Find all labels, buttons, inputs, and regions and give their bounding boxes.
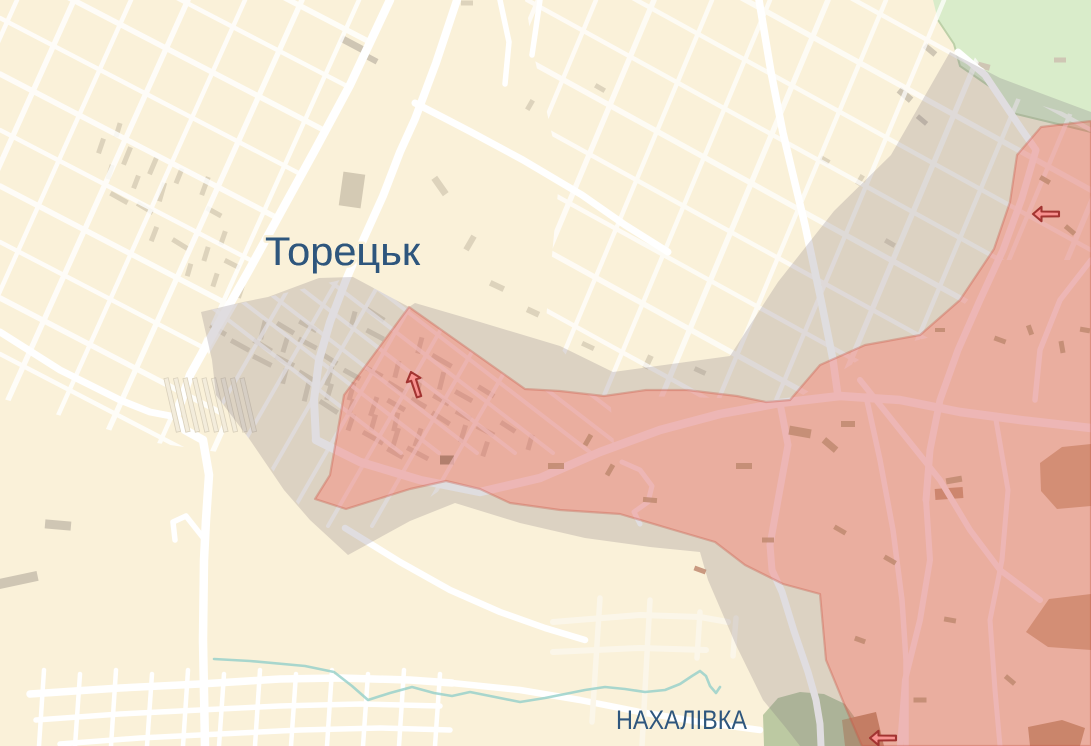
svg-text:НАХАЛІВКА: НАХАЛІВКА: [616, 705, 747, 735]
svg-text:Торецьк: Торецьк: [265, 230, 421, 274]
